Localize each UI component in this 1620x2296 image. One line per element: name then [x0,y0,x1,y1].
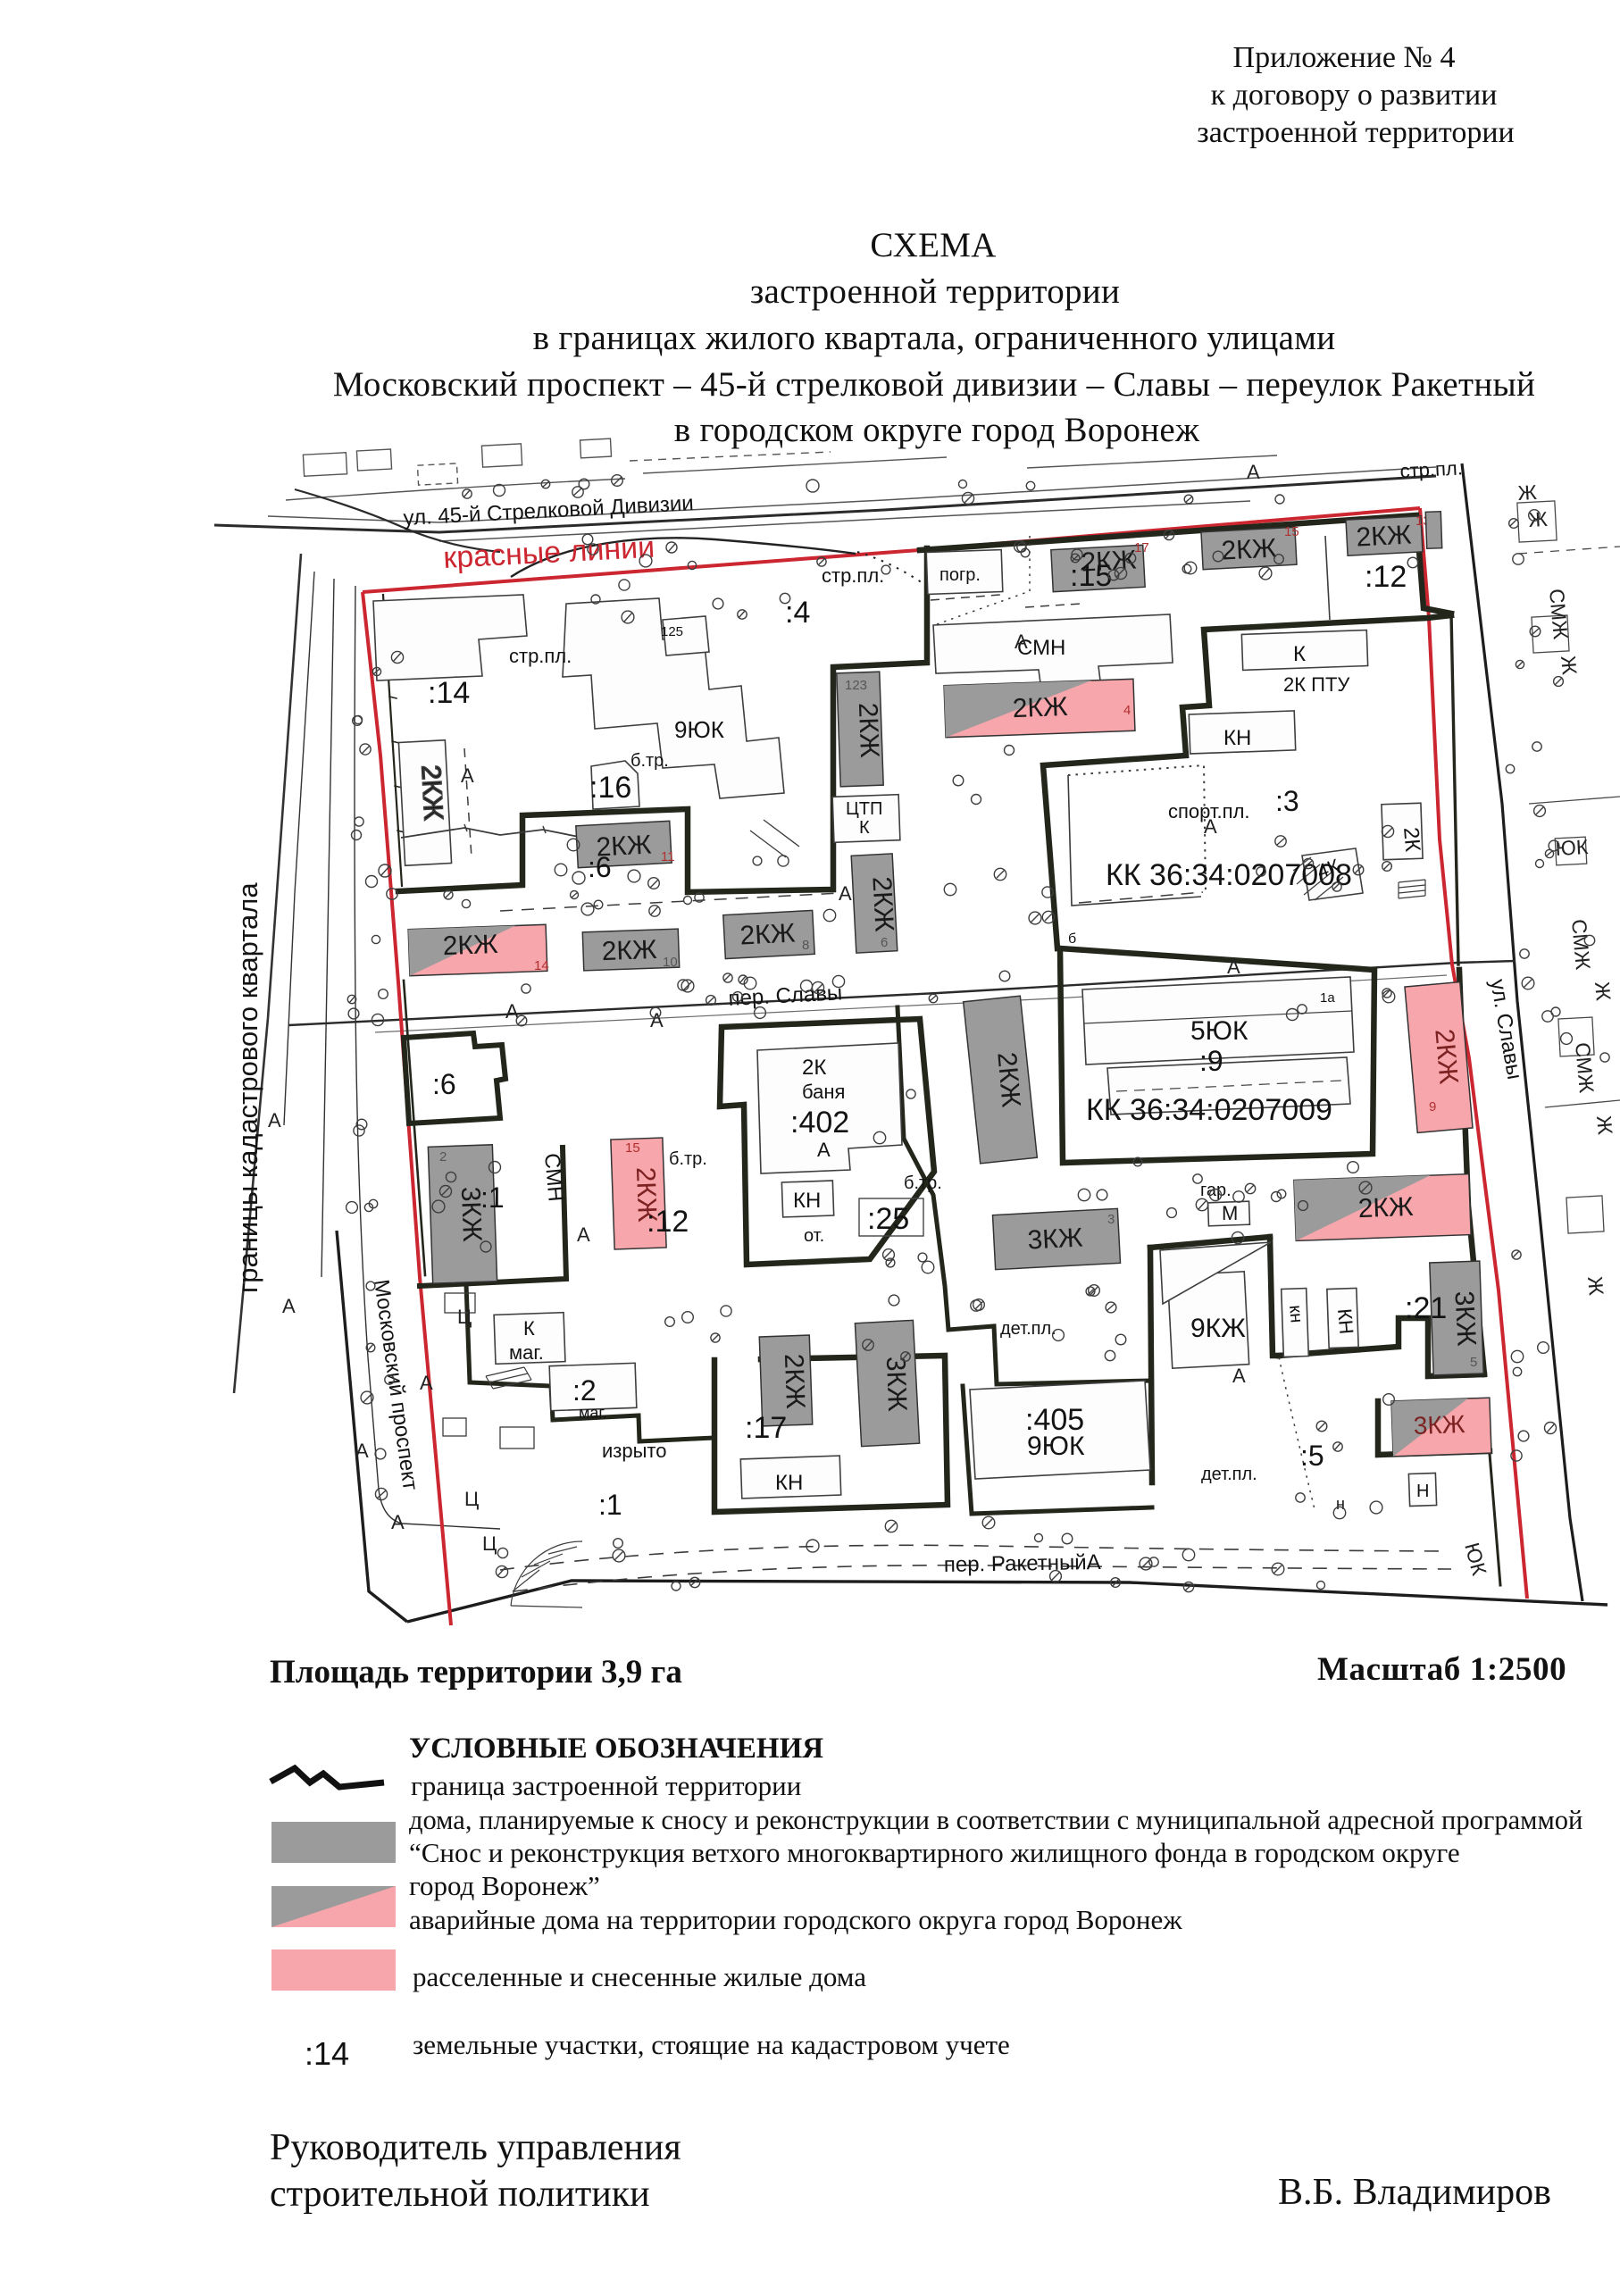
svg-text:СМЖ: СМЖ [1567,918,1595,971]
svg-text:пер. РакетныйА: пер. РакетныйА [944,1550,1101,1577]
svg-text:КН: КН [1223,726,1251,750]
svg-text:11: 11 [661,849,675,864]
svg-text:2КЖ: 2КЖ [739,918,797,950]
svg-text:аварийные дома на территории г: аварийные дома на территории городского … [409,1904,1182,1935]
svg-text:В.Б. Владимиров: В.Б. Владимиров [1278,2172,1551,2213]
svg-text:КН: КН [793,1189,821,1213]
svg-text:гар.: гар. [1200,1181,1232,1200]
svg-text:3КЖ: 3КЖ [1449,1290,1481,1348]
svg-text::12: :12 [647,1205,689,1239]
svg-text::25: :25 [867,1202,909,1236]
svg-text:14: 14 [534,958,549,973]
svg-text:3КЖ: 3КЖ [881,1356,912,1412]
svg-text:2К: 2К [1399,826,1424,853]
svg-text::402: :402 [790,1106,849,1140]
svg-text:9ЮК: 9ЮК [674,716,724,743]
svg-text:3: 3 [1107,1212,1115,1227]
svg-text:2КЖ: 2КЖ [1356,520,1413,552]
svg-text::12: :12 [1365,560,1407,594]
svg-text:2КЖ: 2КЖ [779,1353,810,1409]
svg-text:б.тр.: б.тр. [669,1149,707,1169]
svg-text:в границах жилого квартала, ог: в границах жилого квартала, ограниченног… [533,319,1336,357]
svg-text:2КЖ: 2КЖ [1221,533,1278,565]
svg-text:дет.пл.: дет.пл. [1000,1319,1056,1339]
svg-text:9ЮК: 9ЮК [1027,1432,1085,1461]
svg-text::14: :14 [428,676,470,710]
svg-text:17: 17 [1134,540,1149,555]
svg-text:город Воронеж”: город Воронеж” [409,1870,600,1901]
svg-text:баня: баня [802,1081,845,1103]
svg-text:8: 8 [802,938,809,953]
svg-text::3: :3 [1275,785,1299,817]
svg-text:СМН: СМН [539,1152,568,1203]
svg-text:застроенной территории: застроенной территории [1197,116,1514,149]
svg-text:4: 4 [1123,703,1131,718]
svg-text:б.тр.: б.тр. [630,751,669,771]
svg-text:б: б [1068,931,1076,947]
svg-text:стр.пл.: стр.пл. [509,645,572,667]
svg-text:9: 9 [1429,1099,1436,1115]
svg-text:Ж: Ж [1591,981,1616,1001]
svg-text:границы кадастрового квартала: границы кадастрового квартала [232,882,263,1293]
svg-text:Ж: Ж [1557,655,1582,675]
svg-text:6: 6 [881,935,888,950]
svg-text:А: А [461,764,474,787]
svg-text:А: А [1204,815,1217,838]
svg-text:3КЖ: 3КЖ [1027,1223,1084,1255]
svg-text:дет.пл.: дет.пл. [1201,1465,1257,1484]
svg-text:Ж: Ж [1592,1115,1617,1135]
svg-text:Руководитель управления: Руководитель управления [270,2127,681,2168]
svg-text:изрыто: изрыто [602,1440,667,1462]
svg-text:А: А [817,1139,831,1161]
svg-text:Ж: Ж [1517,480,1538,505]
svg-text:2КЖ: 2КЖ [991,1051,1025,1109]
svg-text:К: К [523,1317,535,1340]
svg-text:Ц: Ц [457,1306,472,1328]
svg-text:5ЮК: 5ЮК [1190,1016,1248,1046]
svg-text:А: А [420,1372,433,1394]
svg-text:СМЖ: СМЖ [1545,588,1573,640]
svg-text::2: :2 [572,1374,597,1407]
svg-text:125: 125 [661,624,683,639]
svg-text:5: 5 [1470,1355,1477,1370]
svg-text:2КЖ: 2КЖ [866,876,898,933]
svg-text:кн: кн [1285,1305,1307,1324]
svg-text:граница застроенной территории: граница застроенной территории [411,1770,801,1801]
svg-text:Московский проспект – 45-й ст: Московский проспект – 45-й стрелковой ди… [333,365,1535,404]
svg-text::14: :14 [305,2035,349,2072]
svg-text:н: н [1336,1495,1345,1513]
svg-text:застроенной территории: застроенной территории [750,272,1120,311]
svg-text:2КЖ: 2КЖ [415,764,447,822]
svg-text:ЦТП: ЦТП [846,799,882,819]
svg-text:1а: 1а [1320,990,1335,1006]
svg-text:А: А [650,1009,664,1031]
svg-text:б.тр.: б.тр. [904,1173,942,1193]
svg-text:2КЖ: 2КЖ [601,935,657,966]
svg-text:Приложение № 4: Приложение № 4 [1233,41,1456,74]
svg-text:А: А [1015,630,1028,653]
svg-text:“Снос и реконструкция ветхого: “Снос и реконструкция ветхого многокварт… [409,1837,1460,1868]
svg-text:Ц: Ц [482,1532,497,1555]
svg-text:10: 10 [663,955,678,970]
svg-text:Масштаб 1:2500: Масштаб 1:2500 [1317,1651,1566,1688]
svg-text:А: А [1232,1365,1246,1387]
svg-text:2КЖ: 2КЖ [1357,1192,1414,1223]
svg-text::9: :9 [1199,1045,1223,1077]
svg-text:погр.: погр. [939,565,981,585]
svg-text:КН: КН [1333,1307,1357,1335]
svg-text:А: А [282,1295,296,1317]
svg-text:в городском округе город Ворон: в городском округе город Воронеж [674,411,1200,449]
svg-text:А: А [1227,956,1240,978]
svg-text::15: :15 [1070,559,1112,593]
svg-text:Ж: Ж [1583,1275,1608,1296]
svg-text::21: :21 [1405,1291,1447,1325]
svg-text:ЮК: ЮК [1555,835,1590,860]
svg-text::17: :17 [745,1411,787,1445]
svg-text:9КЖ: 9КЖ [1190,1314,1246,1343]
svg-text:К: К [1293,642,1306,666]
svg-text::6: :6 [588,851,612,883]
svg-text:К: К [859,818,870,838]
svg-text::6: :6 [432,1068,456,1100]
svg-text:стр.пл.: стр.пл. [1399,456,1464,482]
svg-text:А: А [391,1511,405,1533]
svg-text:2КЖ: 2КЖ [1012,692,1068,723]
svg-text:А: А [268,1109,281,1131]
svg-text:Н: Н [1416,1482,1429,1501]
svg-text:стр.пл.: стр.пл. [822,564,884,587]
svg-text:А: А [839,882,852,905]
svg-text:к договору о развитии: к договору о развитии [1211,79,1498,112]
svg-text:КК 36:34:0207009: КК 36:34:0207009 [1086,1093,1332,1127]
svg-text::5: :5 [1300,1440,1324,1472]
svg-text:СМЖ: СМЖ [1571,1041,1599,1094]
svg-text:КН: КН [775,1471,803,1495]
svg-text:УСЛОВНЫЕ ОБОЗНАЧЕНИЯ: УСЛОВНЫЕ ОБОЗНАЧЕНИЯ [409,1732,823,1765]
svg-text:2КЖ: 2КЖ [1429,1028,1463,1086]
svg-text:М: М [1222,1202,1238,1224]
svg-text:15: 15 [625,1140,640,1156]
svg-text:2КЖ: 2КЖ [442,930,498,961]
svg-text:2К ПТУ: 2К ПТУ [1283,673,1350,696]
svg-text:А: А [355,1440,369,1462]
svg-text:Площадь территории 3,9 га: Площадь территории 3,9 га [270,1654,682,1691]
svg-text:дома, планируемые к сносу и ре: дома, планируемые к сносу и реконструкци… [409,1805,1582,1835]
svg-text::16: :16 [589,771,631,805]
svg-text:СХЕМА: СХЕМА [870,226,996,264]
svg-text:А: А [577,1223,590,1246]
svg-text:маг.: маг. [579,1404,607,1422]
svg-text:земельные участки, стоящие на: земельные участки, стоящие на кадастрово… [413,2029,1010,2060]
svg-text:строительной политики: строительной политики [270,2174,650,2215]
svg-text:123: 123 [845,678,867,693]
svg-text:2КЖ: 2КЖ [853,702,884,758]
svg-text::1: :1 [480,1181,505,1214]
svg-text:от.: от. [804,1226,824,1246]
svg-text::1: :1 [598,1489,622,1521]
svg-text:А: А [1247,461,1260,483]
svg-text:2: 2 [439,1149,447,1165]
svg-text:маг.: маг. [509,1341,544,1364]
svg-text:3КЖ: 3КЖ [1413,1410,1466,1440]
svg-text:2К: 2К [802,1056,826,1080]
svg-text:расселенные и снесенные жилые: расселенные и снесенные жилые дома [413,1961,866,1992]
svg-text:15: 15 [1284,524,1299,539]
svg-text:Ц: Ц [464,1488,479,1510]
